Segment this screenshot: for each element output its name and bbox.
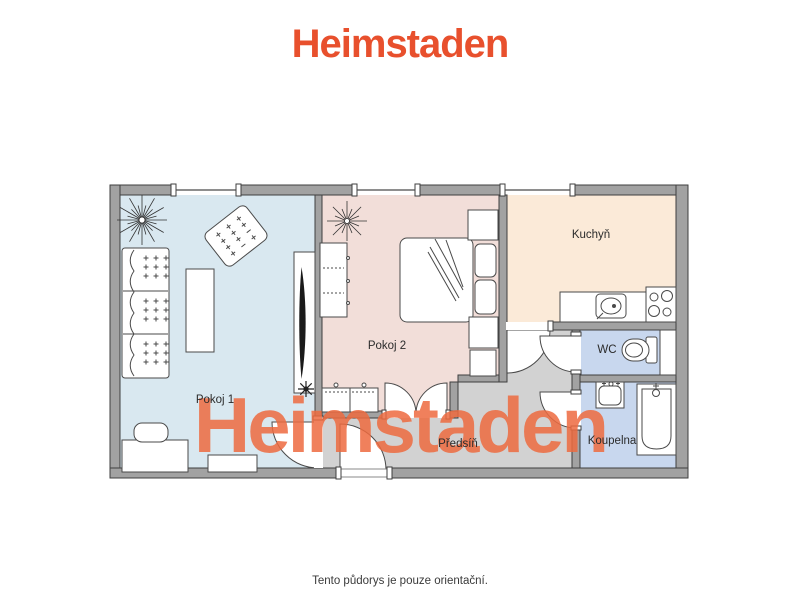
floor-plan: [0, 0, 800, 600]
room-label-kuchyn: Kuchyň: [572, 229, 610, 241]
room-label-pokoj1: Pokoj 1: [196, 394, 234, 406]
wardrobe: [320, 243, 350, 317]
room-label-koupelna: Koupelna: [588, 435, 637, 447]
floorplan-page: Heimstaden: [0, 0, 800, 600]
bathroom-sink: [596, 382, 624, 409]
radiator: [208, 455, 257, 472]
room-label-pokoj2: Pokoj 2: [368, 340, 406, 352]
coffee-table: [186, 269, 214, 352]
utility-shaft: [660, 330, 676, 375]
sofa: [122, 248, 169, 378]
small-plant-icon: [298, 381, 314, 397]
desk-chair: [134, 423, 168, 442]
nightstand-2: [475, 280, 496, 314]
closet-low: [470, 350, 496, 376]
disclaimer-text: Tento půdorys je pouze orientační.: [0, 575, 800, 587]
entrance-threshold: [340, 469, 388, 477]
desk: [122, 440, 188, 472]
room-label-wc: WC: [597, 344, 616, 356]
bedside-cabinet-top: [468, 210, 498, 240]
furniture-kuchyn: [560, 287, 676, 322]
plant-icon-2: [327, 201, 367, 241]
toilet: [622, 337, 657, 363]
brand-logo: Heimstaden: [0, 22, 800, 67]
kitchen-sink: [596, 294, 626, 319]
closet-mid: [469, 317, 498, 348]
double-bed: [400, 238, 473, 322]
bathtub: [637, 383, 676, 455]
nightstand-1: [475, 244, 496, 277]
room-label-predsin: Předsíň: [438, 438, 478, 450]
stove: [646, 287, 676, 322]
